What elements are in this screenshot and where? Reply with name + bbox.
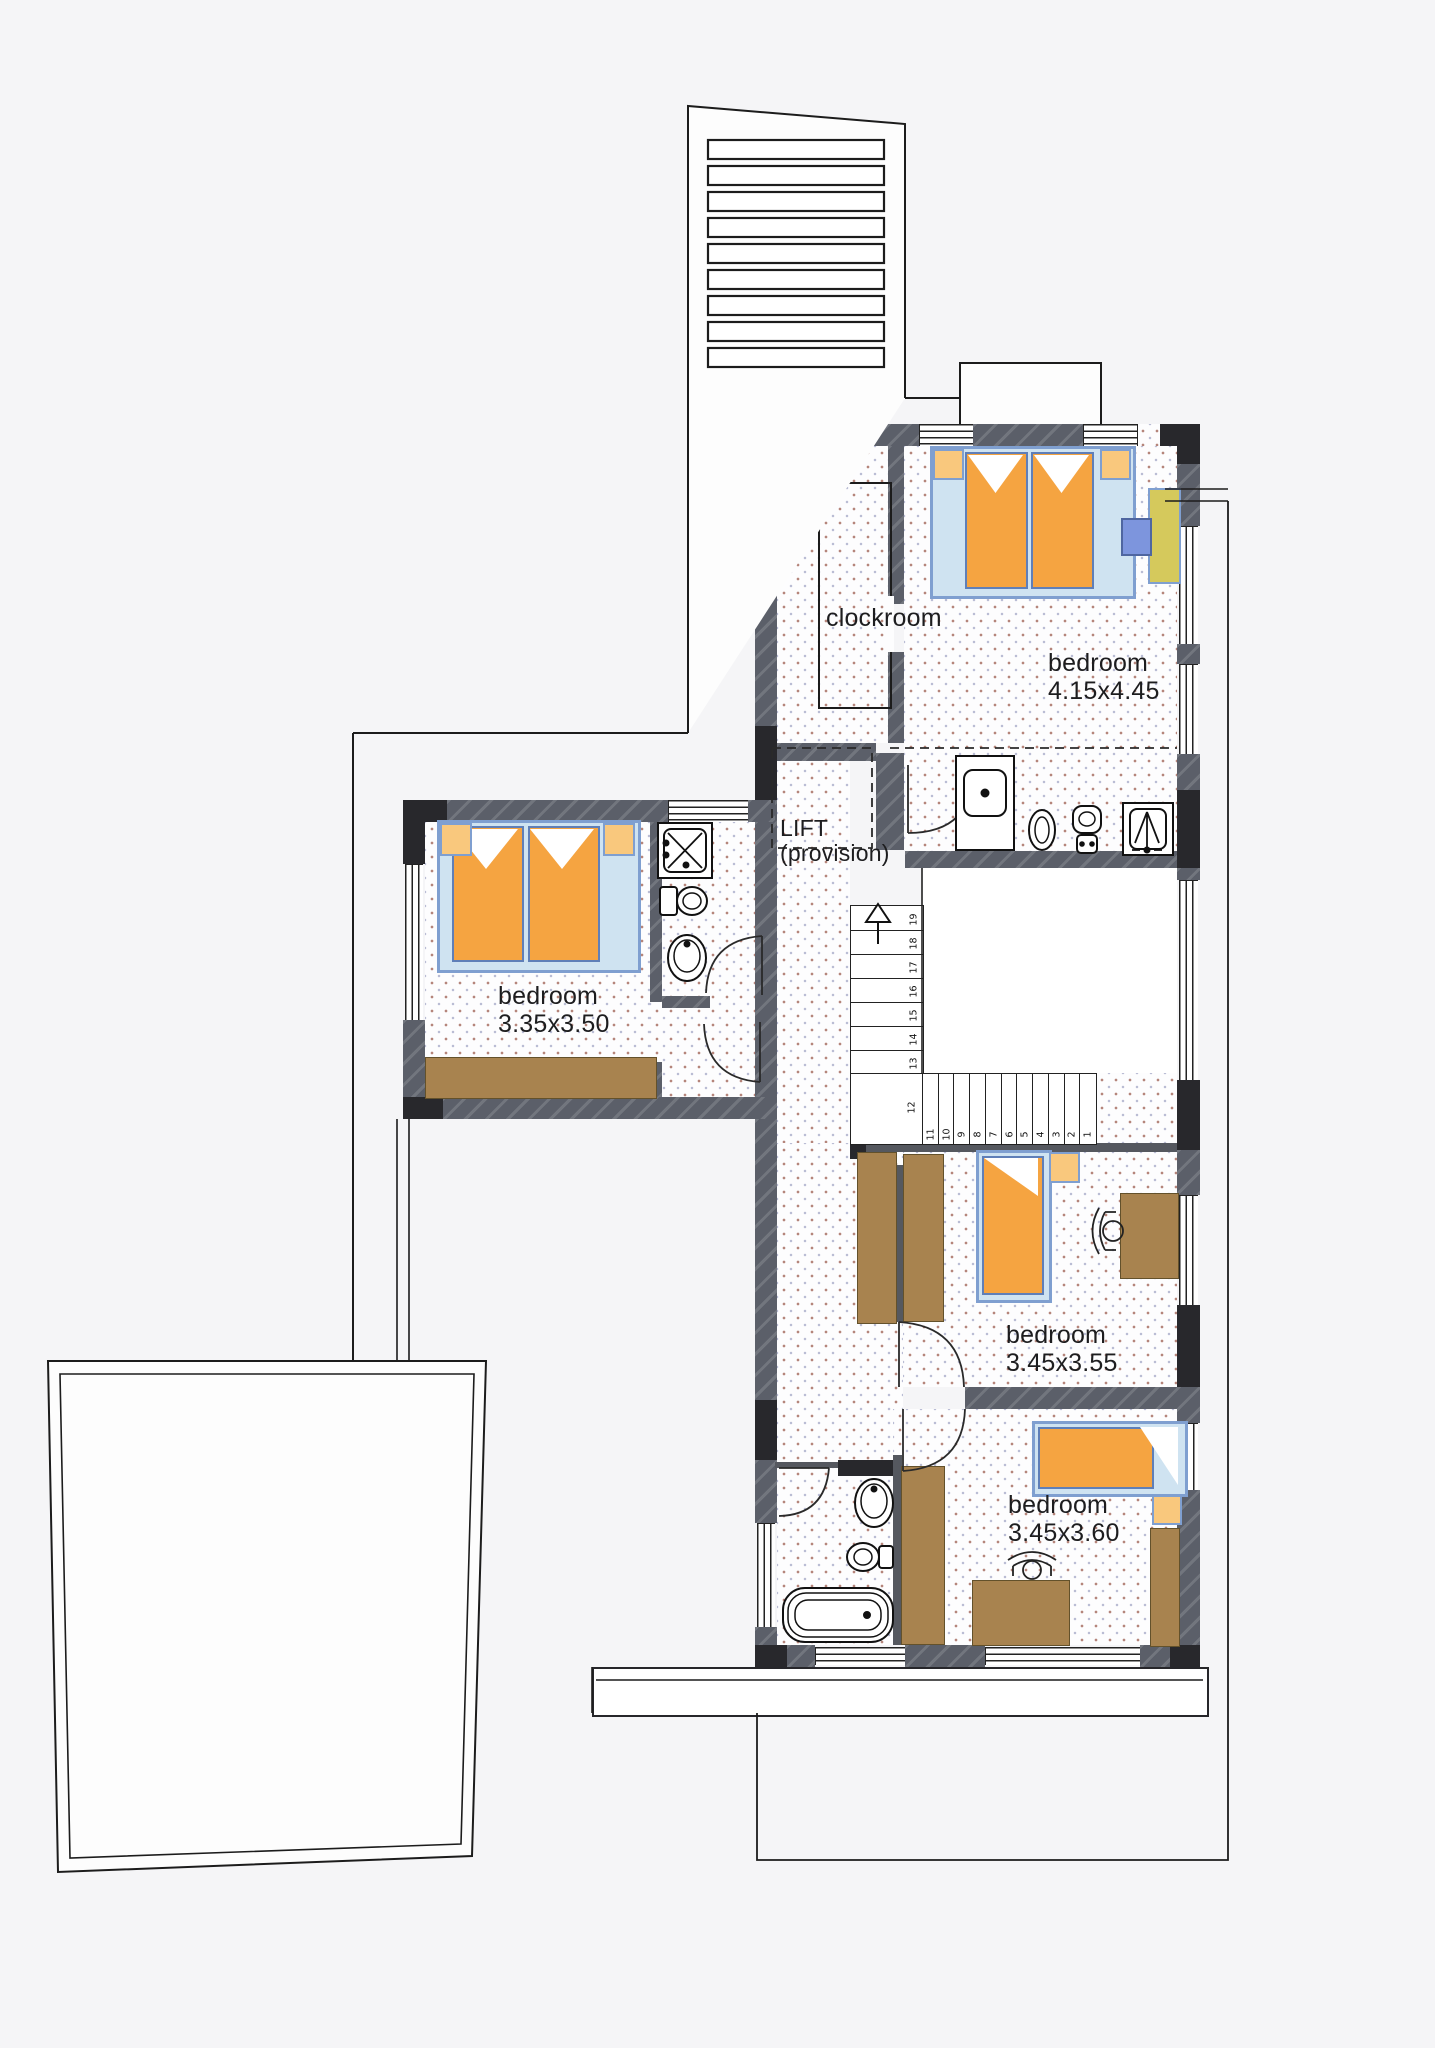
room-name: bedroom [1006, 1321, 1106, 1349]
stair-number: 9 [957, 1128, 968, 1142]
window [815, 1647, 907, 1665]
wardrobe [903, 1154, 944, 1322]
wall-corner [755, 446, 777, 508]
room-label-bedroom-master: bedroom 4.15x4.45 [1048, 650, 1160, 705]
room-note: (provision) [780, 840, 890, 866]
wall-segment [1177, 868, 1200, 880]
floor-bathroom-bottom [777, 1467, 893, 1645]
wall-corner [1177, 790, 1200, 868]
wall-corner [1177, 1305, 1200, 1387]
wall-segment [965, 1387, 1177, 1409]
stair-number: 6 [1004, 1128, 1015, 1142]
wall-corner [403, 1097, 443, 1119]
wall-corner [1177, 1080, 1200, 1150]
wall-segment [447, 800, 668, 822]
mattress [1038, 1427, 1154, 1489]
room-name: LIFT [780, 815, 828, 841]
wall-segment [905, 851, 1177, 868]
wall-corner [755, 1645, 787, 1667]
balcony-ledge [592, 1667, 1209, 1717]
stair-number: 17 [909, 961, 920, 975]
wall-segment [787, 1645, 815, 1667]
wall-segment [755, 1460, 777, 1523]
wall-corner [838, 1460, 895, 1476]
window [985, 1647, 1142, 1665]
room-label-clockroom: clockroom [826, 605, 942, 633]
wall-segment [755, 1627, 777, 1645]
wall-corner [1170, 1645, 1200, 1667]
desk [1120, 1193, 1179, 1279]
wall-segment [748, 800, 775, 822]
wall-thin [775, 1462, 838, 1468]
stairs-upper-flight: 13141516171819 [850, 905, 924, 1075]
stair-number: 7 [988, 1128, 999, 1142]
stairs-landing: 12 [850, 1073, 924, 1145]
wardrobe [857, 1152, 897, 1324]
stair-number: 12 [907, 1101, 918, 1115]
room-label-lift: LIFT (provision) [780, 816, 890, 867]
stair-number: 19 [909, 913, 920, 927]
chair-master [1121, 518, 1152, 556]
window [1179, 1195, 1198, 1307]
window [757, 1523, 775, 1629]
nightstand [440, 823, 472, 856]
floor-stair-side [1095, 1073, 1177, 1143]
wall-divider [650, 822, 662, 1002]
stair-number: 16 [909, 985, 920, 999]
closet-outline [818, 482, 892, 709]
wardrobe-left-bedroom [425, 1057, 657, 1099]
room-label-bedroom-middle: bedroom 3.45x3.55 [1006, 1322, 1118, 1377]
room-name: bedroom [498, 982, 598, 1010]
stair-number: 18 [909, 937, 920, 951]
stair-number: 15 [909, 1009, 920, 1023]
wardrobe [1150, 1528, 1180, 1647]
room-size: 3.45x3.55 [1006, 1349, 1118, 1377]
room-label-bedroom-left: bedroom 3.35x3.50 [498, 983, 610, 1038]
wall-segment [443, 1097, 777, 1119]
window [1083, 424, 1138, 446]
wall-corner [403, 800, 447, 822]
floor-hallway [777, 743, 850, 1143]
stair-number: 10 [941, 1128, 952, 1142]
wall-corner [755, 1400, 777, 1460]
stair-number: 14 [909, 1033, 920, 1047]
window [1179, 880, 1198, 1082]
wall-segment [1177, 1387, 1200, 1423]
room-size: 3.45x3.60 [1008, 1519, 1120, 1547]
wall-segment [755, 508, 777, 726]
wall-corner [403, 822, 425, 864]
stair-number: 2 [1067, 1128, 1078, 1142]
nightstand [933, 449, 964, 480]
wall-segment [1140, 1645, 1170, 1667]
wall-segment [905, 1645, 985, 1667]
wall-segment [1177, 644, 1200, 664]
stair-number: 3 [1051, 1128, 1062, 1142]
stairs-lower-flight: 1234567891011 [922, 1073, 1097, 1145]
wall-segment [777, 743, 876, 761]
room-size: 4.15x4.45 [1048, 677, 1160, 705]
nightstand [1049, 1152, 1080, 1183]
window [919, 424, 975, 446]
stair-number: 8 [973, 1128, 984, 1142]
desk [972, 1580, 1070, 1646]
pergola-louvres [708, 140, 884, 367]
nightstand [603, 823, 635, 856]
wall-corner [1177, 424, 1200, 464]
room-name: bedroom [1008, 1491, 1108, 1519]
stair-number: 4 [1035, 1128, 1046, 1142]
entrance-bay-outline [959, 362, 1102, 430]
wall-segment [662, 996, 710, 1008]
room-name: bedroom [1048, 649, 1148, 677]
stairwell-void [922, 868, 1177, 1073]
wall-segment [802, 424, 919, 446]
floor-plan-canvas: 13141516171819 12 1234567891011 [0, 0, 1435, 2048]
wardrobe [901, 1466, 945, 1645]
wall-corner [755, 424, 802, 446]
floor-ensuite-left [650, 822, 755, 1097]
window [668, 800, 750, 822]
wall-segment [755, 800, 777, 1097]
wall-segment [1177, 1150, 1200, 1195]
stair-number: 11 [925, 1128, 936, 1142]
wall-corner [755, 726, 777, 800]
nightstand [1152, 1495, 1182, 1525]
room-label-bedroom-bottom: bedroom 3.45x3.60 [1008, 1492, 1120, 1547]
stair-number: 5 [1020, 1128, 1031, 1142]
nightstand [1100, 449, 1131, 480]
stair-number: 1 [1083, 1128, 1094, 1142]
stair-number: 13 [909, 1057, 920, 1071]
window [1179, 526, 1198, 646]
wall-segment [973, 424, 1083, 446]
room-size: 3.35x3.50 [498, 1010, 610, 1038]
window [1179, 664, 1198, 756]
floor-wall-pocket [1136, 424, 1160, 446]
room-name: clockroom [826, 604, 942, 632]
wall-segment [403, 1020, 425, 1097]
desk-master [1148, 488, 1181, 584]
wall-segment [755, 1119, 777, 1400]
window [405, 864, 423, 1022]
wall-segment [1177, 754, 1200, 790]
